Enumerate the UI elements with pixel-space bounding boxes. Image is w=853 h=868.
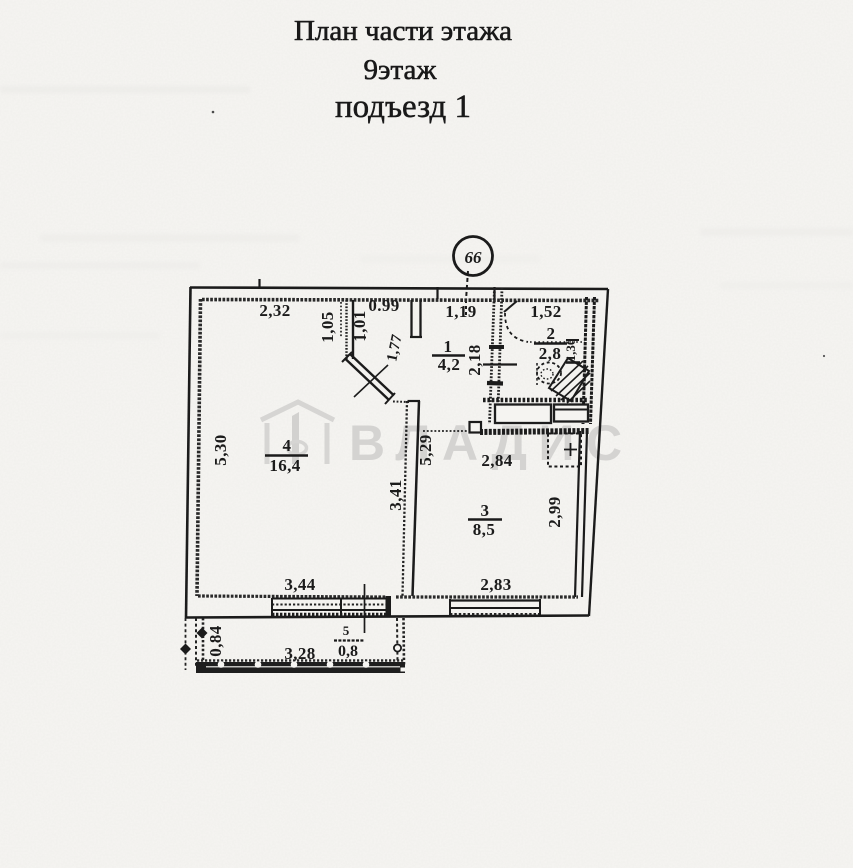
svg-text:2,83: 2,83 (480, 575, 511, 594)
svg-text:2,84: 2,84 (481, 451, 512, 470)
svg-text:2,99: 2,99 (545, 496, 564, 527)
svg-text:План части этажа: План части этажа (294, 15, 512, 47)
svg-text:1,01: 1,01 (350, 310, 369, 341)
svg-text:66: 66 (465, 248, 483, 267)
svg-text:1: 1 (444, 337, 453, 356)
svg-text:0.99: 0.99 (368, 296, 399, 315)
svg-text:0,8: 0,8 (338, 643, 358, 660)
svg-text:16,4: 16,4 (269, 456, 300, 475)
svg-text:1,36: 1,36 (563, 338, 578, 361)
svg-text:5,29: 5,29 (416, 434, 435, 465)
svg-text:4: 4 (283, 436, 292, 455)
svg-text:4,2: 4,2 (438, 355, 460, 374)
svg-text:9этаж: 9этаж (364, 54, 438, 86)
svg-text:1,05: 1,05 (318, 311, 337, 342)
svg-text:5,30: 5,30 (211, 434, 230, 465)
svg-text:подъезд 1: подъезд 1 (335, 89, 471, 125)
svg-text:1,52: 1,52 (530, 302, 561, 321)
svg-text:2,8: 2,8 (539, 344, 561, 363)
svg-text:1,19: 1,19 (445, 302, 476, 321)
svg-text:0,84: 0,84 (206, 625, 225, 656)
svg-text:5: 5 (343, 623, 350, 638)
svg-text:2,18: 2,18 (465, 344, 484, 375)
svg-text:8,5: 8,5 (473, 520, 495, 539)
svg-text:2,32: 2,32 (259, 301, 290, 320)
svg-text:3: 3 (481, 501, 490, 520)
svg-text:3,44: 3,44 (284, 575, 315, 594)
svg-text:3,28: 3,28 (284, 644, 315, 663)
svg-text:3,41: 3,41 (386, 479, 405, 510)
svg-text:2: 2 (547, 324, 556, 343)
